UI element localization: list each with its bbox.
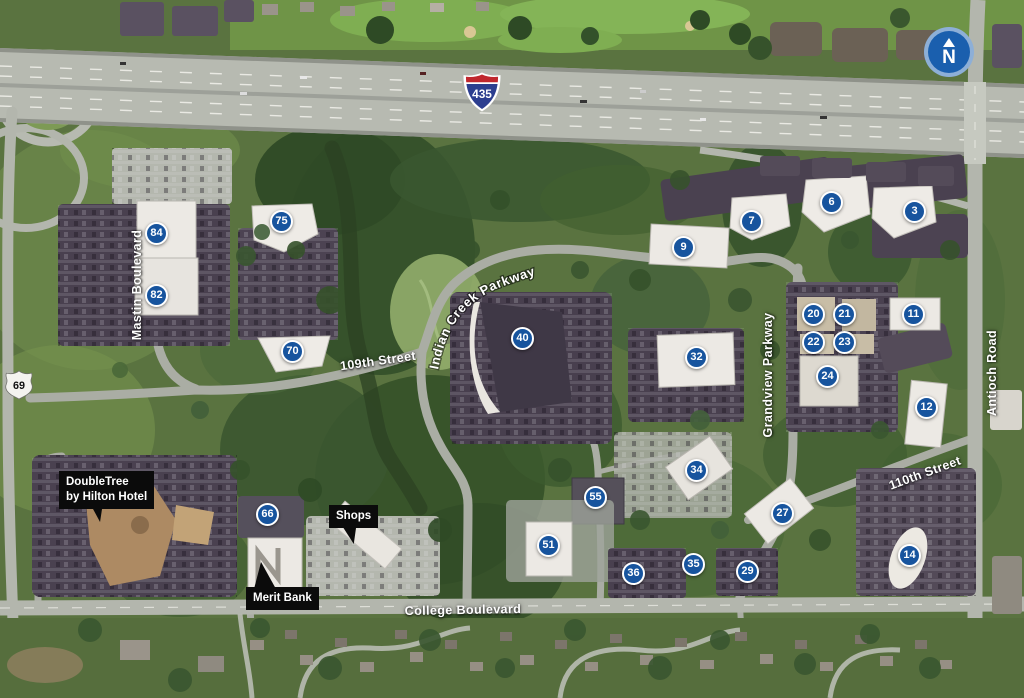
building-marker-66[interactable]: 66 xyxy=(256,503,279,526)
building-marker-34[interactable]: 34 xyxy=(685,459,708,482)
building-marker-21[interactable]: 21 xyxy=(833,303,856,326)
building-marker-22[interactable]: 22 xyxy=(802,331,825,354)
street-label-antioch-road: Antioch Road xyxy=(985,330,999,416)
poi-label-shops: Shops xyxy=(329,505,378,528)
north-arrow-icon xyxy=(943,38,955,47)
building-marker-55[interactable]: 55 xyxy=(584,486,607,509)
building-marker-7[interactable]: 7 xyxy=(740,210,763,233)
street-label-grandview-parkway: Grandview Parkway xyxy=(761,313,775,438)
building-marker-40[interactable]: 40 xyxy=(511,327,534,350)
us-route-69-shield: 69 xyxy=(4,370,34,400)
building-marker-36[interactable]: 36 xyxy=(622,562,645,585)
building-marker-11[interactable]: 11 xyxy=(902,303,925,326)
suburb-strip xyxy=(0,614,1024,698)
street-label-college-boulevard: College Boulevard xyxy=(405,602,522,618)
campus-satellite-map: Indian Creek Parkway Mastin Boulevard 10… xyxy=(0,0,1024,698)
building-marker-70[interactable]: 70 xyxy=(281,340,304,363)
building-marker-20[interactable]: 20 xyxy=(802,303,825,326)
building-marker-27[interactable]: 27 xyxy=(771,502,794,525)
compass-letter: N xyxy=(942,48,956,67)
interstate-435-number: 435 xyxy=(472,87,492,101)
north-compass: N xyxy=(924,27,974,77)
building-marker-82[interactable]: 82 xyxy=(145,284,168,307)
building-marker-23[interactable]: 23 xyxy=(833,331,856,354)
building-marker-12[interactable]: 12 xyxy=(915,396,938,419)
poi-label-doubletree-hotel: DoubleTree by Hilton Hotel xyxy=(59,471,154,509)
building-marker-32[interactable]: 32 xyxy=(685,346,708,369)
interstate-435-shield: 435 xyxy=(463,72,501,112)
building-marker-29[interactable]: 29 xyxy=(736,560,759,583)
building-marker-35[interactable]: 35 xyxy=(682,553,705,576)
building-marker-14[interactable]: 14 xyxy=(898,544,921,567)
building-marker-3[interactable]: 3 xyxy=(903,200,926,223)
us-route-69-number: 69 xyxy=(13,380,25,392)
street-label-mastin-boulevard: Mastin Boulevard xyxy=(130,230,144,341)
building-marker-75[interactable]: 75 xyxy=(270,210,293,233)
building-marker-6[interactable]: 6 xyxy=(820,191,843,214)
building-marker-9[interactable]: 9 xyxy=(672,236,695,259)
poi-label-merit-bank: Merit Bank xyxy=(246,587,319,610)
satellite-basemap: Indian Creek Parkway xyxy=(0,0,1024,698)
building-marker-84[interactable]: 84 xyxy=(145,222,168,245)
building-marker-24[interactable]: 24 xyxy=(816,365,839,388)
building-marker-51[interactable]: 51 xyxy=(537,534,560,557)
